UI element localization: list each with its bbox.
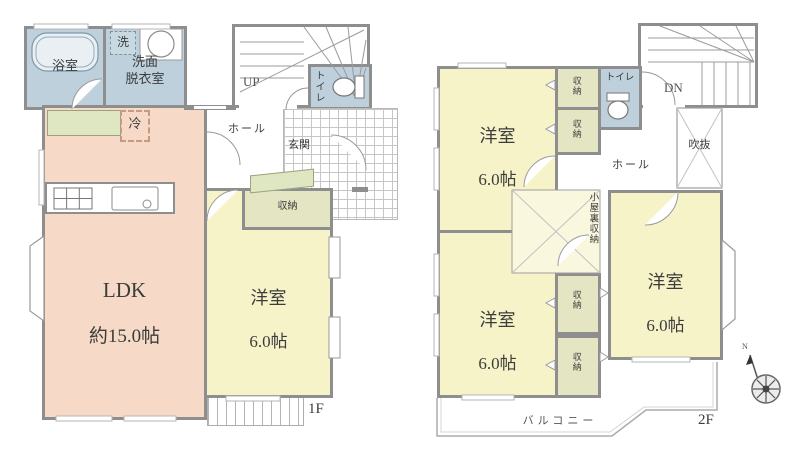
- label-hall-2f: ホール: [612, 158, 651, 172]
- label-balcony: バルコニー: [500, 414, 620, 428]
- stairwell-2f: [638, 23, 758, 108]
- label-bedroom-2f-nw: 洋室 6.0帖: [437, 104, 558, 192]
- label-entrance: 玄関: [288, 138, 310, 152]
- label-void: 吹抜: [677, 138, 722, 152]
- bedroom-1f-size: 6.0帖: [249, 332, 287, 351]
- label-closet-2f-a: 収納: [570, 76, 582, 96]
- label-laundry: 洗: [110, 35, 136, 51]
- label-closet-2f-c: 収納: [570, 290, 582, 310]
- label-floor-1f: 1F: [308, 400, 324, 420]
- label-closet-2f-d: 収納: [570, 352, 582, 372]
- bedroom-2f-sw-name: 洋室: [480, 310, 516, 330]
- kitchen-cabinet-1f: [47, 110, 121, 136]
- label-washroom: 洗面 脱衣室: [103, 54, 187, 88]
- bedroom-2f-sw-size: 6.0帖: [478, 354, 516, 373]
- bedroom-2f-e-size: 6.0帖: [646, 316, 684, 335]
- bedroom-2f-nw-name: 洋室: [480, 126, 516, 146]
- ldk-size: 約15.0帖: [89, 326, 160, 347]
- label-floor-2f: 2F: [698, 411, 714, 431]
- label-bedroom-2f-e: 洋室 6.0帖: [608, 250, 723, 338]
- label-attic: 小屋裏収納: [586, 192, 598, 245]
- label-closet-1f: 収納: [242, 200, 333, 213]
- label-fridge: 冷: [120, 116, 150, 133]
- label-ldk: LDK 約15.0帖: [42, 256, 207, 350]
- label-toilet-2f: トイレ: [598, 72, 642, 84]
- label-bedroom-1f: 洋室 6.0帖: [204, 266, 333, 354]
- label-closet-2f-b: 収納: [570, 119, 582, 139]
- deck-1f: [207, 398, 304, 426]
- label-up: UP: [243, 74, 260, 91]
- label-toilet-1f: トイレ: [312, 70, 325, 103]
- ldk-name: LDK: [103, 278, 146, 302]
- compass-icon: [746, 355, 780, 403]
- bedroom-1f-name: 洋室: [251, 288, 287, 308]
- bay-window-2f: [722, 240, 735, 330]
- label-dn: DN: [664, 80, 683, 97]
- bedroom-2f-e-name: 洋室: [648, 272, 684, 292]
- floor-plan-canvas: 浴室 洗 洗面 脱衣室 UP トイレ ホール 玄関 冷 LDK 約15.0帖 収…: [0, 0, 800, 459]
- kitchen-counter-1f: [45, 182, 175, 214]
- label-hall-1f: ホール: [228, 122, 267, 136]
- bedroom-2f-nw-size: 6.0帖: [478, 170, 516, 189]
- label-bedroom-2f-sw: 洋室 6.0帖: [437, 288, 558, 376]
- label-bath: 浴室: [24, 58, 106, 75]
- label-compass-n: N: [742, 342, 748, 352]
